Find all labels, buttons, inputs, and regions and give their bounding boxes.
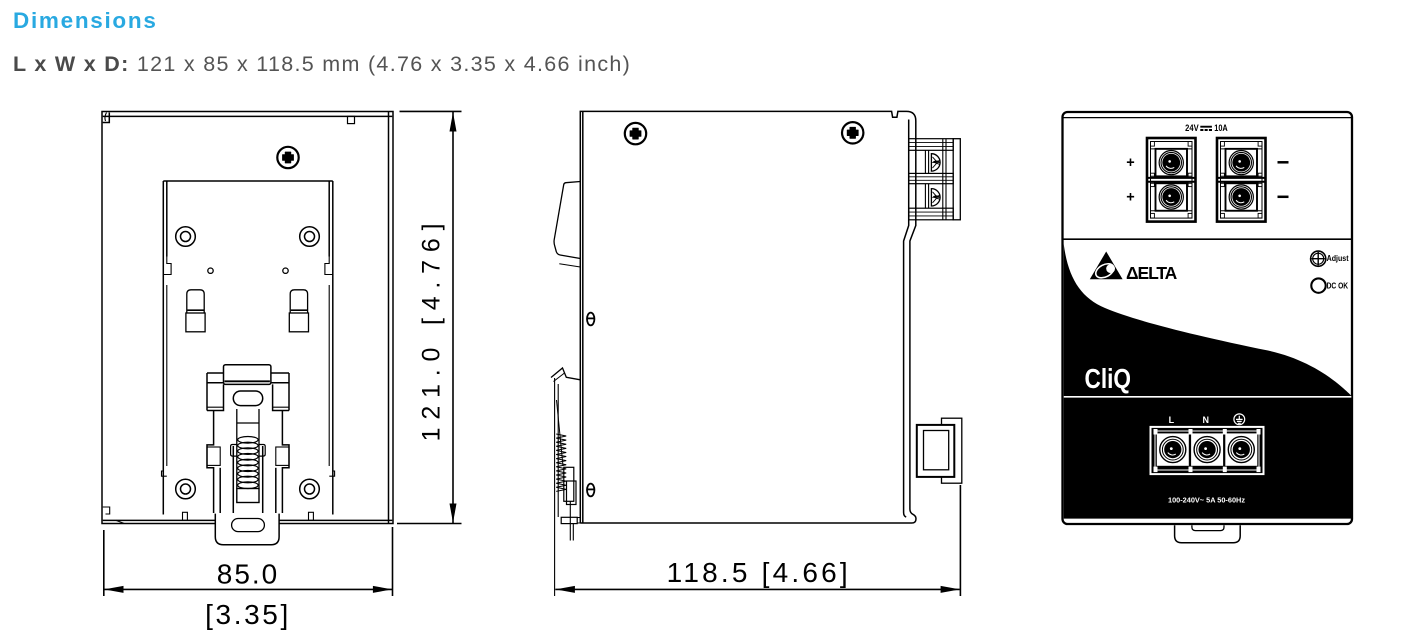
svg-text:100-240V~ 5A 50-60Hz: 100-240V~ 5A 50-60Hz: [1168, 496, 1245, 505]
svg-text:24V: 24V: [1185, 123, 1199, 133]
svg-text:118.5 [4.66]: 118.5 [4.66]: [667, 557, 851, 588]
svg-text:CliQ: CliQ: [1085, 363, 1132, 394]
svg-text:+: +: [1126, 190, 1134, 206]
svg-text:+: +: [1126, 155, 1134, 171]
svg-text:85.0: 85.0: [217, 559, 280, 590]
svg-text:N: N: [1203, 415, 1210, 425]
svg-text:121.0 [4.76]: 121.0 [4.76]: [418, 216, 446, 442]
svg-text:Adjust: Adjust: [1327, 254, 1349, 263]
svg-text:[3.35]: [3.35]: [205, 599, 291, 630]
svg-text:10A: 10A: [1214, 123, 1228, 133]
svg-text:DC OK: DC OK: [1327, 282, 1349, 291]
svg-text:L: L: [1169, 415, 1175, 425]
svg-text:ΔELTA: ΔELTA: [1126, 263, 1178, 283]
